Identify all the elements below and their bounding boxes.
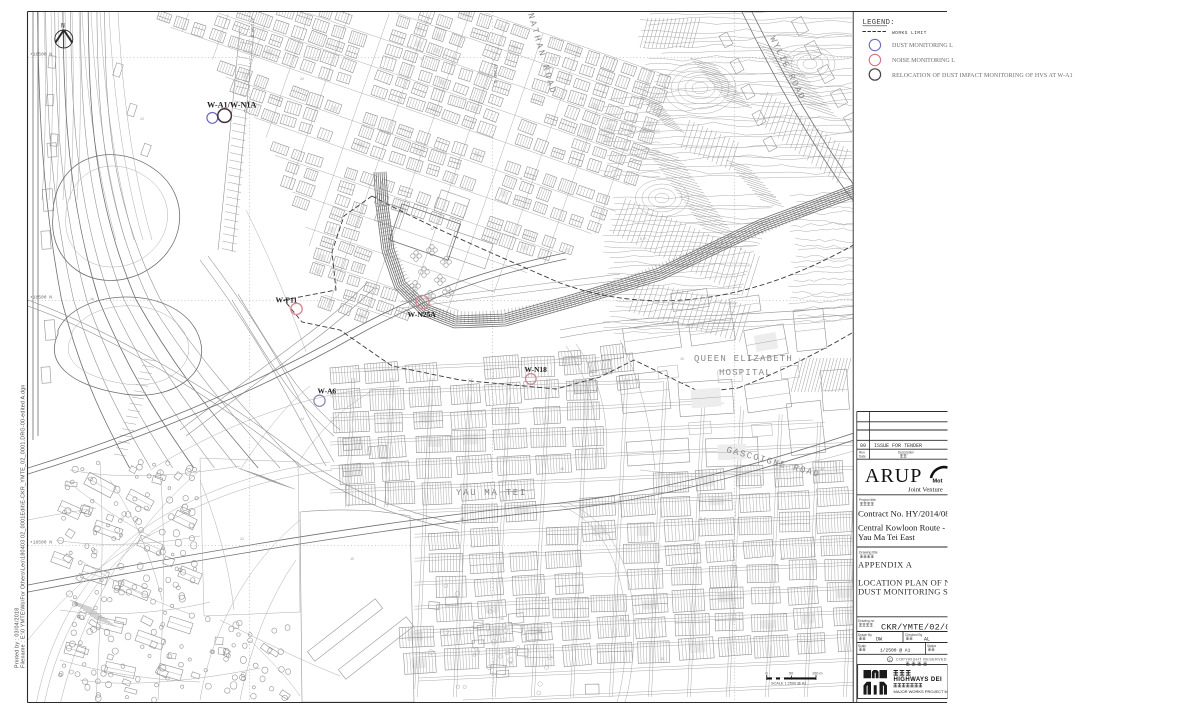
svg-text:22: 22	[240, 538, 244, 542]
svg-text:MAJOR WORKS PROJECT M: MAJOR WORKS PROJECT M	[894, 689, 948, 694]
svg-text:AY150 S: AY150 S	[492, 64, 498, 84]
svg-text:DUST MONITORING ST: DUST MONITORING ST	[858, 587, 954, 597]
svg-text:12: 12	[620, 618, 624, 622]
svg-text:Joint Venture: Joint Venture	[908, 487, 943, 494]
svg-text:AL: AL	[924, 637, 930, 643]
svg-text:22: 22	[660, 658, 664, 662]
svg-text:Filename : E:\0 YMTE\Wo\For O: Filename : E:\0 YMTE\Wo\For Others\Leo\1…	[21, 384, 27, 668]
svg-text:AY150 S: AY150 S	[249, 18, 255, 38]
svg-text:7: 7	[380, 418, 382, 422]
svg-text:8: 8	[520, 178, 522, 182]
svg-text:100 m: 100 m	[812, 671, 823, 675]
svg-text:COPYRIGHT RESERVED: COPYRIGHT RESERVED	[896, 658, 947, 662]
svg-text:12: 12	[420, 58, 424, 62]
svg-text:NOISE MONITORING L: NOISE MONITORING L	[892, 58, 955, 64]
svg-text:DUST MONITORING L: DUST MONITORING L	[892, 43, 953, 49]
svg-text:•18500 N: •18500 N	[30, 295, 52, 301]
svg-text:RELOCATION OF DUST IMPACT MONI: RELOCATION OF DUST IMPACT MONITORING OF …	[892, 73, 1073, 79]
svg-text:15: 15	[680, 358, 684, 362]
svg-text:C: C	[889, 657, 892, 662]
svg-text:50: 50	[789, 671, 793, 675]
svg-text:ARUP: ARUP	[865, 465, 922, 487]
svg-text:Drawn By: Drawn By	[858, 633, 872, 637]
svg-text:4a: 4a	[90, 298, 94, 302]
svg-text:Drawing no.: Drawing no.	[858, 619, 875, 623]
svg-text:15: 15	[350, 558, 354, 562]
svg-text:00: 00	[860, 443, 866, 449]
svg-text:PO: PO	[580, 98, 584, 102]
svg-text:Scale: Scale	[858, 644, 866, 648]
svg-text:1/2500 @ A1: 1/2500 @ A1	[880, 648, 911, 654]
svg-text:APPENDIX A: APPENDIX A	[858, 560, 913, 570]
svg-text:YAU MA TEI: YAU MA TEI	[456, 488, 527, 498]
svg-text:DW: DW	[876, 637, 882, 643]
svg-text:W-N18: W-N18	[525, 365, 548, 374]
svg-text:K.P.: K.P.	[640, 238, 648, 242]
svg-text:Project title: Project title	[859, 498, 876, 502]
svg-text:ISSUE FOR TENDER: ISSUE FOR TENDER	[874, 443, 922, 449]
svg-text:CKR/YMTE/02/0: CKR/YMTE/02/0	[881, 623, 951, 633]
svg-text:15: 15	[120, 518, 124, 522]
svg-text:0: 0	[766, 671, 768, 675]
svg-text:W-N25A: W-N25A	[408, 310, 437, 319]
svg-text:W-A6: W-A6	[318, 387, 337, 396]
svg-text:SCALE 1:2500 @ A1: SCALE 1:2500 @ A1	[771, 682, 807, 686]
svg-text:HOSPITAL: HOSPITAL	[719, 368, 772, 378]
svg-text:8: 8	[740, 248, 742, 252]
svg-text:WORKS LIMIT: WORKS LIMIT	[892, 30, 927, 36]
svg-text:Contract No. HY/2014/08: Contract No. HY/2014/08	[858, 509, 950, 519]
svg-text:•18500 N: •18500 N	[30, 52, 52, 58]
svg-text:Description: Description	[898, 451, 914, 455]
svg-text:Checked By: Checked By	[905, 633, 923, 637]
svg-text:22: 22	[300, 78, 304, 82]
svg-text:W-A1/W-N1A: W-A1/W-N1A	[207, 101, 257, 110]
svg-text:K.P.: K.P.	[700, 518, 708, 522]
svg-text:15: 15	[500, 618, 504, 622]
svg-text:Yau Ma Tei East: Yau Ma Tei East	[858, 532, 915, 542]
svg-text:12: 12	[460, 518, 464, 522]
svg-text:12: 12	[300, 418, 304, 422]
svg-text:Date: Date	[859, 455, 866, 459]
svg-text:N: N	[61, 23, 65, 30]
svg-text:Status: Status	[927, 644, 936, 648]
svg-text:12: 12	[430, 228, 434, 232]
svg-text:15: 15	[560, 468, 564, 472]
svg-text:22: 22	[140, 118, 144, 122]
svg-text:7: 7	[760, 638, 762, 642]
svg-text:12: 12	[780, 558, 784, 562]
svg-text:Mot: Mot	[933, 479, 943, 485]
svg-text:•18500 N: •18500 N	[30, 540, 52, 546]
svg-text:QUEEN ELIZABETH: QUEEN ELIZABETH	[694, 354, 793, 364]
svg-text:Drawing title: Drawing title	[859, 551, 878, 555]
svg-text:HIGHWAYS DEI: HIGHWAYS DEI	[894, 677, 943, 683]
